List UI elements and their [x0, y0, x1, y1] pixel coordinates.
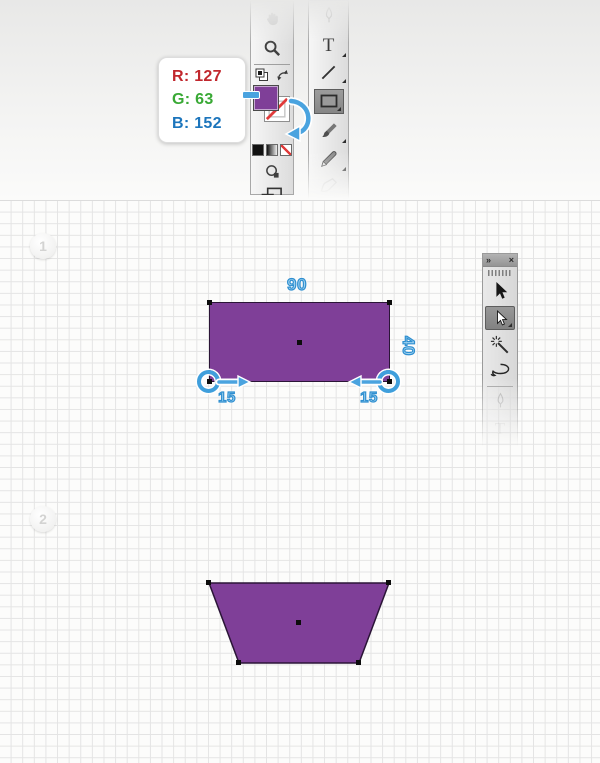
purple-trapezoid-shape[interactable]	[200, 576, 400, 671]
artboard-canvas: 1 2 90 40 15 15	[0, 200, 600, 763]
step-1-badge: 1	[30, 233, 56, 259]
width-dimension-label: 90	[267, 275, 327, 295]
none-mode-button[interactable]	[280, 144, 292, 156]
center-point[interactable]	[296, 620, 301, 625]
submenu-corner	[337, 107, 341, 111]
swap-fill-stroke-icon[interactable]	[276, 68, 289, 83]
submenu-corner	[342, 139, 346, 143]
rgb-tooltip: R: 127 G: 63 B: 152	[158, 57, 246, 143]
type-tool-icon[interactable]: T	[483, 415, 517, 441]
anchor-point[interactable]	[236, 660, 241, 665]
gradient-mode-button[interactable]	[266, 144, 278, 156]
paint-modes-row	[251, 144, 293, 156]
purple-rectangle-shape[interactable]	[209, 302, 390, 382]
toolbar-section: T	[0, 0, 600, 200]
panel-close-button[interactable]: ×	[509, 256, 514, 265]
panel-grip-handle[interactable]	[488, 270, 512, 276]
anchor-point[interactable]	[356, 660, 361, 665]
type-tool-label: T	[495, 420, 505, 437]
step-1-number: 1	[39, 238, 47, 254]
type-tool-label: T	[323, 36, 335, 55]
panel-divider	[487, 386, 513, 387]
rgb-green-value: G: 63	[172, 88, 245, 111]
rgb-blue-value: B: 152	[172, 112, 245, 135]
pencil-tool-icon[interactable]	[309, 145, 348, 173]
center-point[interactable]	[297, 340, 302, 345]
rgb-red-value: R: 127	[172, 65, 245, 88]
line-segment-tool-icon[interactable]	[309, 59, 348, 85]
hand-tool-icon[interactable]	[251, 1, 293, 35]
anchor-point[interactable]	[207, 300, 212, 305]
lasso-tool-icon[interactable]	[483, 358, 517, 384]
selected-tool-box	[485, 306, 515, 330]
right-inset-label: 15	[351, 389, 387, 406]
blob-brush-tool-icon[interactable]	[309, 173, 348, 199]
strip-divider	[254, 64, 290, 65]
anchor-point[interactable]	[387, 300, 392, 305]
swatch-mini-row	[251, 67, 293, 84]
submenu-corner	[342, 53, 346, 57]
pen-tool-icon[interactable]	[483, 389, 517, 415]
pen-tool-icon[interactable]	[309, 1, 348, 31]
panel-expand-button[interactable]: »	[486, 256, 491, 265]
drawing-mode-icon[interactable]	[251, 159, 293, 183]
move-left-arrow	[347, 374, 383, 390]
floating-tools-panel: » × T	[482, 253, 518, 449]
magic-wand-tool-icon[interactable]	[483, 332, 517, 358]
selection-tool-icon[interactable]	[483, 278, 517, 304]
default-fill-stroke-icon[interactable]	[255, 68, 269, 83]
move-right-arrow	[216, 374, 252, 390]
stroke-none-curved-arrow	[281, 94, 315, 144]
type-tool-icon[interactable]: T	[309, 31, 348, 59]
submenu-corner	[508, 323, 512, 327]
step-2-badge: 2	[30, 506, 56, 532]
left-inset-label: 15	[209, 389, 245, 406]
screenshot-root: T	[0, 0, 600, 763]
step-2-number: 2	[39, 511, 47, 527]
submenu-corner	[342, 79, 346, 83]
height-dimension-label: 40	[398, 326, 418, 366]
anchor-point[interactable]	[206, 580, 211, 585]
panel-header: » ×	[483, 254, 517, 267]
tooltip-connector-arrow	[242, 91, 260, 99]
direct-selection-tool-selected[interactable]	[483, 304, 517, 332]
rectangle-tool-box	[314, 89, 344, 114]
submenu-corner	[342, 167, 346, 171]
color-mode-button[interactable]	[252, 144, 264, 156]
zoom-tool-icon[interactable]	[251, 35, 293, 62]
anchor-point[interactable]	[386, 580, 391, 585]
